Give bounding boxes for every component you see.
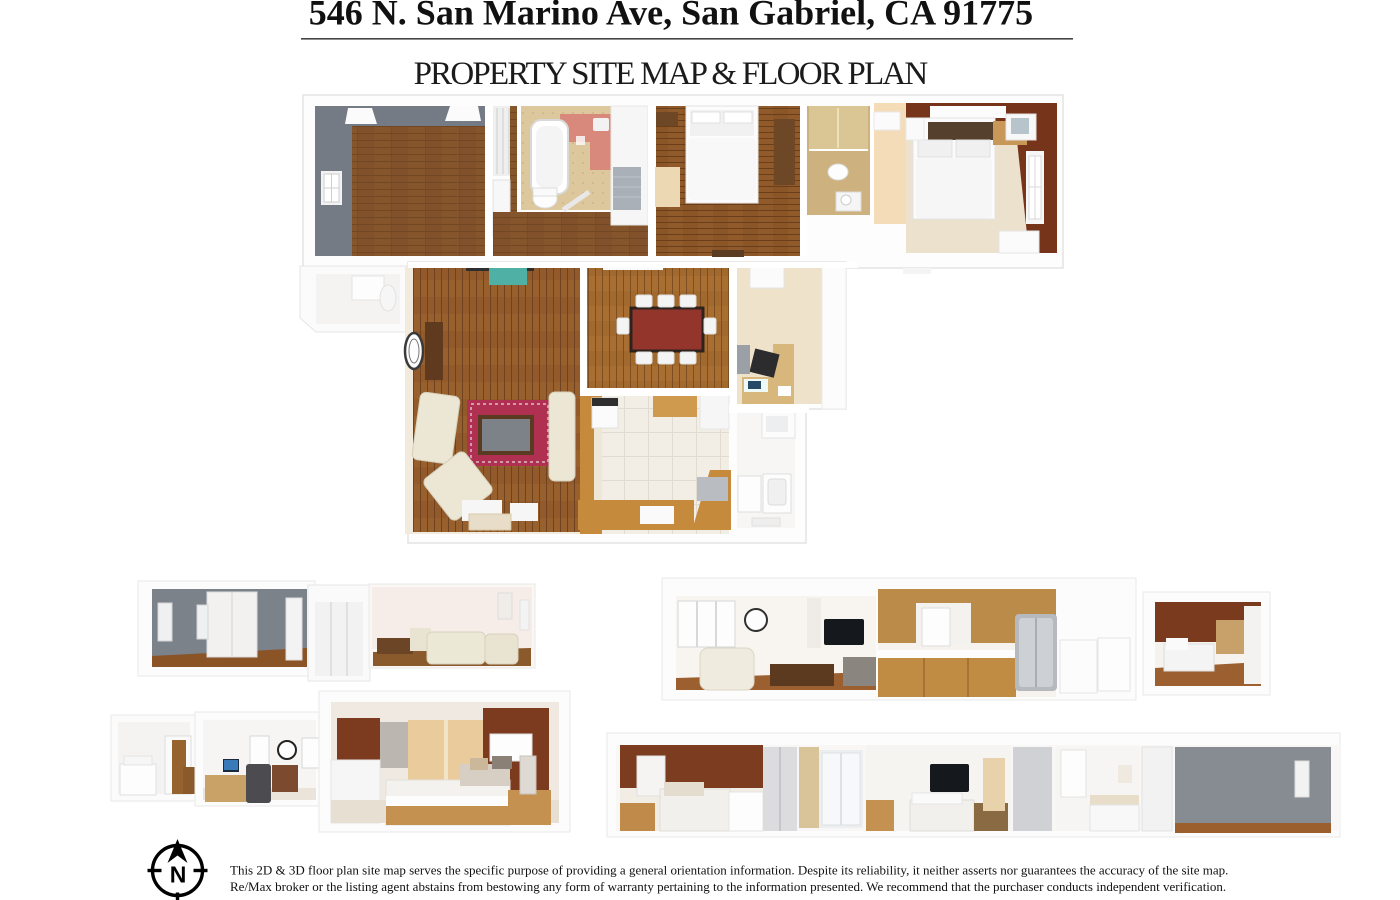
svg-text:This 2D & 3D floor plan site: This 2D & 3D floor plan site map serves … [230,863,1228,878]
svg-text:N: N [170,862,187,888]
svg-text:Re/Max broker or the listing a: Re/Max broker or the listing agent absta… [230,879,1226,894]
svg-text:546 N. San Marino Ave, San Gab: 546 N. San Marino Ave, San Gabriel, CA 9… [309,0,1033,33]
svg-text:PROPERTY SITE MAP & FLOOR PLAN: PROPERTY SITE MAP & FLOOR PLAN [414,56,929,92]
